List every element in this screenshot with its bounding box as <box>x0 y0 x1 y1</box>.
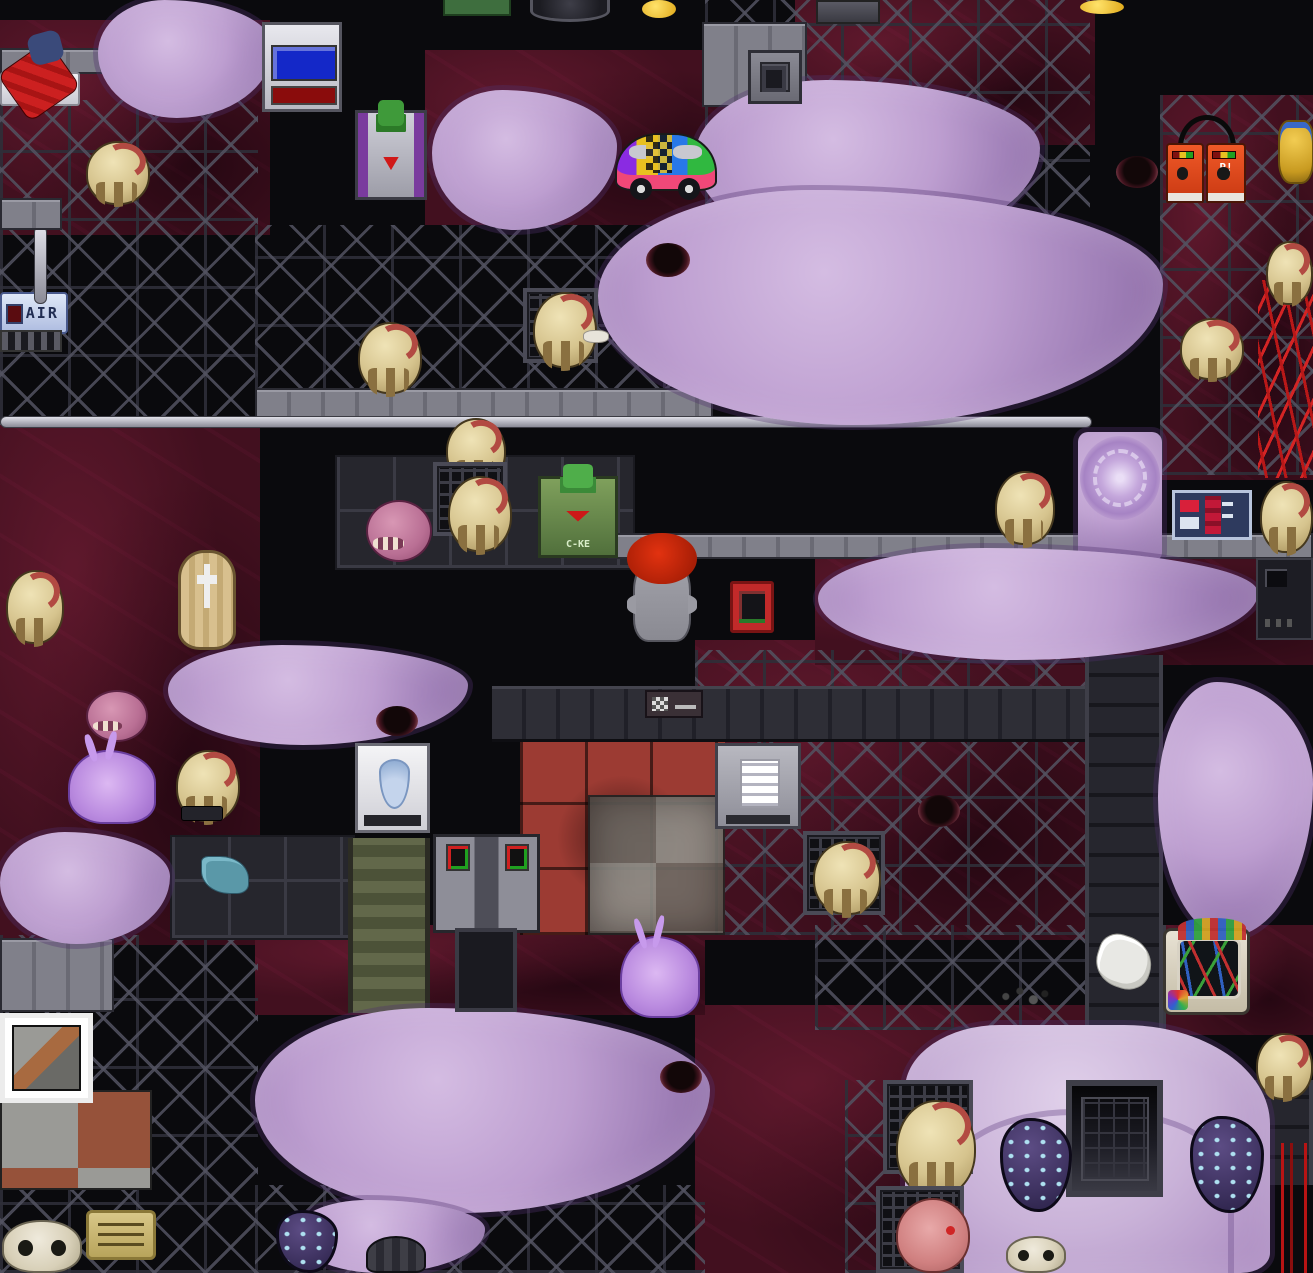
dark-shaft[interactable] <box>1066 1080 1163 1197</box>
tentacle-creature-2[interactable] <box>358 322 422 394</box>
seed-vendor[interactable] <box>355 743 430 833</box>
vendor-orange-right-label: P! <box>1208 161 1244 174</box>
growth-topcenter-c <box>598 190 1163 425</box>
flesh-hole-4[interactable] <box>918 795 960 827</box>
tentacle-creature-9[interactable] <box>1260 481 1313 553</box>
arcade-machine-green-label: C-KE <box>541 539 615 550</box>
rusty-tiles-bottomleft <box>0 1090 152 1190</box>
growth-bottomcenter <box>255 1008 710 1213</box>
vendor-orange-left[interactable] <box>1166 143 1204 203</box>
wall-bottomleft <box>0 938 114 1012</box>
car-wheel-left <box>630 178 652 200</box>
flesh-hole-3[interactable] <box>376 706 418 736</box>
pipe-vertical <box>34 226 47 304</box>
tentacle-creature-back[interactable] <box>896 1100 976 1197</box>
library-computer[interactable] <box>715 743 801 829</box>
wall-sign[interactable] <box>645 690 703 718</box>
pink-jelly[interactable] <box>896 1198 970 1273</box>
pink-creature[interactable] <box>86 690 148 742</box>
top-yellow-orb[interactable] <box>642 0 676 18</box>
top-machine-gray[interactable] <box>816 0 880 24</box>
tv-wires <box>1178 918 1246 940</box>
door-access-panel[interactable] <box>762 66 786 92</box>
air-dispenser-label: AIR <box>21 304 63 322</box>
tentacle-creature-8[interactable] <box>995 471 1055 545</box>
purple-slime-2[interactable] <box>620 936 700 1018</box>
brass-plaque[interactable] <box>86 1210 156 1260</box>
clown-car[interactable] <box>615 133 717 191</box>
growth-rightmid <box>1158 682 1313 937</box>
dark-item[interactable] <box>181 806 223 821</box>
conveyor-belt <box>348 838 430 1013</box>
conveyor-frame <box>455 928 517 1012</box>
floor-plates-conveyorside <box>170 835 355 940</box>
top-tank[interactable] <box>530 0 610 22</box>
gold-armor[interactable] <box>1278 120 1313 184</box>
red-vines <box>1258 280 1313 478</box>
tentacle-creature-0[interactable] <box>86 141 150 205</box>
flesh-hole-1[interactable] <box>646 243 690 277</box>
tentacle-creature-7[interactable] <box>1266 241 1313 305</box>
debris-scatter <box>998 983 1050 1010</box>
vendor-orange-right[interactable]: P! <box>1206 143 1246 203</box>
tentacle-creature-4[interactable] <box>448 476 512 552</box>
arcade-machine-purple[interactable] <box>355 110 427 200</box>
tentacle-creature-6[interactable] <box>1180 318 1244 380</box>
game-viewport: AIRP!C-KE <box>0 0 1313 1273</box>
top-machine-green[interactable] <box>443 0 511 16</box>
rusty-tiles-mixed <box>588 795 725 935</box>
arcade-machine-blue[interactable] <box>262 22 342 112</box>
skull-creature[interactable] <box>2 1220 82 1273</box>
conveyor-machine[interactable] <box>433 834 540 933</box>
wall-band-dark <box>492 686 1092 742</box>
pink-horror[interactable] <box>366 500 432 562</box>
blood-streaks <box>1276 1143 1313 1273</box>
slot-machine-row[interactable] <box>0 330 62 352</box>
wired-tv[interactable] <box>1163 928 1250 1015</box>
catwalk-lattice-bottomcenter <box>815 925 1090 1030</box>
fax-console[interactable] <box>1172 490 1252 540</box>
growth-centerleft <box>168 645 468 745</box>
arcade-machine-green[interactable]: C-KE <box>538 476 618 558</box>
wooden-coffin[interactable] <box>178 550 236 650</box>
flesh-hole-2[interactable] <box>1116 156 1158 188</box>
skull-item[interactable] <box>1006 1236 1066 1273</box>
purple-slime-1[interactable] <box>68 750 156 824</box>
tentacle-creature-11[interactable] <box>813 841 881 915</box>
clown-figure[interactable] <box>633 556 691 642</box>
top-yellow-item[interactable] <box>1080 0 1124 14</box>
tentacle-creature-12[interactable] <box>1256 1033 1313 1100</box>
framed-photo[interactable] <box>0 1013 93 1103</box>
dark-console[interactable] <box>1256 558 1313 640</box>
bone-item[interactable] <box>583 330 609 343</box>
fire-alarm[interactable] <box>730 581 774 633</box>
flesh-hole-5[interactable] <box>660 1061 702 1093</box>
gray-husk[interactable] <box>366 1236 426 1273</box>
growth-portal[interactable] <box>1080 436 1160 520</box>
wall-chunk-left <box>0 198 62 230</box>
tentacle-creature-5[interactable] <box>6 570 64 644</box>
car-wheel-right <box>678 178 700 200</box>
